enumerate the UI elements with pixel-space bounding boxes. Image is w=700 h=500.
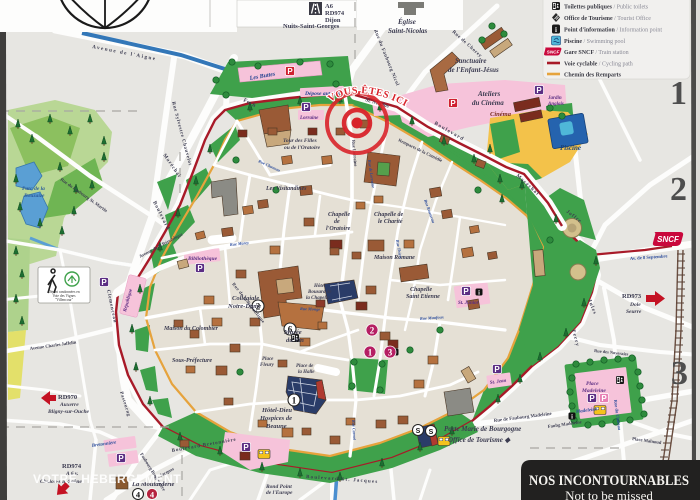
svg-text:du Vin: du Vin [286,337,304,344]
svg-text:1: 1 [292,396,297,406]
svg-text:A6: A6 [325,3,334,10]
svg-text:Hôtel: Hôtel [313,284,326,289]
svg-text:Chapelle: Chapelle [410,287,432,293]
svg-text:Fleury: Fleury [260,363,275,368]
svg-text:Sanctuaire: Sanctuaire [455,57,487,65]
svg-text:Parc de la: Parc de la [22,186,45,192]
svg-text:S: S [429,429,434,436]
svg-text:Bouzaize: Bouzaize [23,193,45,199]
svg-text:Office de Tourisme / Tourist O: Office de Tourisme / Tourist Office [564,15,651,22]
svg-text:Madeleine: Madeleine [581,388,606,394]
svg-text:S: S [416,428,421,435]
svg-text:RD973: RD973 [622,293,642,300]
svg-text:i: i [555,26,557,34]
svg-text:Cinéma: Cinéma [490,111,512,118]
svg-text:Piscine / Swimming pool: Piscine / Swimming pool [564,39,626,45]
svg-text:SNCF: SNCF [547,50,560,55]
svg-text:Place: Place [262,357,274,362]
svg-text:2: 2 [370,326,375,336]
svg-text:Piscine: Piscine [560,144,581,152]
svg-text:"Villencour": "Villencour" [55,298,74,302]
svg-text:NOS INCONTOURNABLES: NOS INCONTOURNABLES [529,473,689,489]
svg-text:Les Visitandines: Les Visitandines [265,186,307,192]
svg-text:Jardin: Jardin [547,96,562,101]
svg-text:Place: Place [586,381,599,387]
svg-text:Beaune: Beaune [265,423,287,430]
svg-text:RD974: RD974 [325,10,345,17]
svg-text:Gare SNCF / Train station: Gare SNCF / Train station [564,50,629,56]
svg-text:Maison du Colombier: Maison du Colombier [163,326,219,332]
svg-text:Office de Tourisme ◆: Office de Tourisme ◆ [448,436,512,444]
svg-text:1: 1 [368,348,373,358]
svg-text:Musée: Musée [283,329,302,336]
svg-text:2: 2 [670,171,687,208]
svg-text:le Charité: le Charité [378,219,403,225]
svg-text:3: 3 [388,348,393,358]
svg-text:Chemin des Remparts: Chemin des Remparts [564,73,622,79]
svg-text:1: 1 [670,75,687,112]
svg-text:Anglais: Anglais [547,102,564,107]
svg-text:Saint-Nicolas: Saint-Nicolas [388,27,428,35]
svg-text:Porte Marie de Bourgogne: Porte Marie de Bourgogne [444,425,521,433]
svg-text:Bousard de: Bousard de [307,290,332,295]
svg-text:Tour des Filles: Tour des Filles [283,138,317,144]
svg-text:Maison Romane: Maison Romane [373,255,415,261]
svg-text:la Chapelle: la Chapelle [306,296,330,301]
svg-text:VOTRE HEBERGEMENT: VOTRE HEBERGEMENT [33,472,181,486]
svg-text:Ateliers: Ateliers [477,90,500,98]
svg-text:la Halle: la Halle [298,370,315,375]
svg-text:3: 3 [671,355,688,392]
svg-text:Place de: Place de [296,364,314,369]
svg-text:Seurre: Seurre [626,309,642,315]
svg-text:de l'Europe: de l'Europe [266,490,293,496]
svg-text:RD974: RD974 [62,463,82,470]
svg-text:Saint Etienne: Saint Etienne [406,294,440,300]
svg-text:Rue Monge: Rue Monge [300,306,320,312]
svg-text:l'Oratoire: l'Oratoire [326,226,351,232]
svg-text:Not to be missed: Not to be missed [565,488,653,500]
svg-text:ou de l'Oratoire: ou de l'Oratoire [284,145,321,151]
svg-text:du Cinéma: du Cinéma [472,99,504,107]
svg-text:Hôtel-Dieu: Hôtel-Dieu [261,407,292,414]
svg-text:de l'Enfant-Jésus: de l'Enfant-Jésus [448,66,499,74]
svg-text:Hospices de: Hospices de [259,415,292,422]
svg-text:Lorraine: Lorraine [299,116,319,121]
svg-text:Point d'information / Informat: Point d'information / Information point [564,27,662,34]
svg-text:de: de [334,219,340,225]
svg-text:Nuits-Saint-Georges: Nuits-Saint-Georges [283,23,340,30]
svg-text:Église: Église [397,18,416,26]
svg-text:Auxerre: Auxerre [59,402,79,408]
svg-text:P: P [601,394,607,403]
svg-text:Sous-Préfecture: Sous-Préfecture [172,358,212,364]
svg-text:Toilettes publiques / Public t: Toilettes publiques / Public toilets [564,4,649,10]
svg-text:Dole: Dole [629,302,641,308]
svg-text:Voie cyclable / Cycling path: Voie cyclable / Cycling path [564,61,633,67]
svg-text:Chapelle: Chapelle [328,212,350,218]
svg-text:RD970: RD970 [58,394,77,401]
svg-text:Bligny-sur-Ouche: Bligny-sur-Ouche [47,409,90,415]
svg-text:St. Junior: St. Junior [458,301,479,306]
svg-text:Chapelle de: Chapelle de [374,212,403,218]
svg-text:Bibliothèque: Bibliothèque [187,256,218,262]
